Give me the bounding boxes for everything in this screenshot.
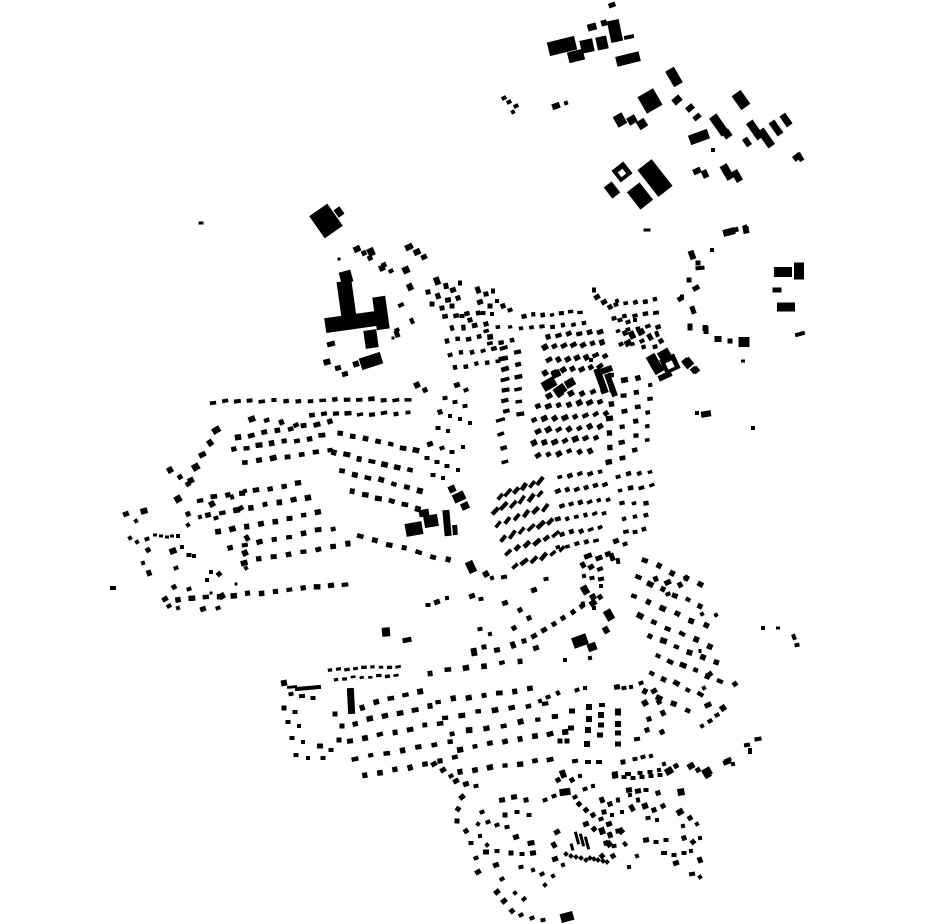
building bbox=[198, 451, 207, 459]
building bbox=[381, 713, 389, 720]
building bbox=[531, 417, 538, 423]
building bbox=[205, 578, 209, 582]
building bbox=[300, 423, 306, 429]
building bbox=[592, 288, 596, 293]
building bbox=[635, 788, 642, 794]
building bbox=[448, 773, 454, 779]
building bbox=[659, 709, 666, 717]
building bbox=[542, 797, 548, 802]
building bbox=[350, 675, 355, 678]
building bbox=[328, 668, 333, 672]
building bbox=[607, 831, 614, 838]
building bbox=[652, 296, 657, 301]
building bbox=[495, 849, 500, 853]
building bbox=[489, 575, 494, 580]
building bbox=[703, 622, 710, 629]
building bbox=[243, 565, 248, 570]
building bbox=[555, 426, 563, 433]
building bbox=[259, 590, 265, 596]
building bbox=[534, 403, 541, 410]
building bbox=[501, 398, 509, 404]
building bbox=[559, 503, 566, 509]
building bbox=[393, 464, 401, 471]
building bbox=[699, 611, 704, 616]
building bbox=[404, 484, 411, 490]
building bbox=[701, 410, 712, 418]
building bbox=[283, 399, 289, 404]
building bbox=[458, 793, 466, 801]
building bbox=[649, 774, 654, 778]
building bbox=[564, 355, 572, 363]
building bbox=[699, 654, 706, 661]
building bbox=[541, 503, 550, 513]
building bbox=[563, 100, 568, 105]
building bbox=[795, 331, 806, 337]
building bbox=[281, 438, 287, 444]
building bbox=[773, 288, 782, 293]
building bbox=[692, 113, 701, 122]
building bbox=[380, 411, 387, 416]
building bbox=[491, 346, 498, 352]
building bbox=[281, 680, 288, 687]
building bbox=[611, 316, 617, 321]
building bbox=[177, 474, 184, 481]
building bbox=[501, 575, 508, 580]
building bbox=[431, 742, 438, 748]
building bbox=[546, 757, 554, 763]
building bbox=[439, 445, 445, 450]
building bbox=[561, 437, 568, 444]
building bbox=[710, 248, 714, 252]
building bbox=[634, 574, 642, 581]
building bbox=[134, 539, 139, 544]
building bbox=[478, 834, 483, 839]
building bbox=[655, 324, 662, 330]
building bbox=[313, 421, 321, 428]
building bbox=[523, 797, 529, 803]
building bbox=[231, 446, 237, 452]
building bbox=[536, 490, 544, 498]
building bbox=[508, 529, 517, 539]
building bbox=[654, 840, 659, 844]
building bbox=[506, 99, 512, 105]
building bbox=[447, 739, 453, 744]
building bbox=[411, 707, 419, 713]
building bbox=[444, 667, 451, 672]
building bbox=[517, 761, 524, 767]
building bbox=[578, 366, 586, 373]
building bbox=[621, 686, 627, 691]
building bbox=[463, 387, 469, 392]
building bbox=[435, 292, 442, 299]
building bbox=[290, 496, 297, 502]
building bbox=[564, 516, 570, 522]
building bbox=[392, 398, 400, 403]
building bbox=[110, 586, 116, 590]
building bbox=[685, 596, 691, 602]
building bbox=[405, 521, 424, 537]
building bbox=[406, 283, 414, 292]
building bbox=[474, 868, 482, 875]
building bbox=[500, 303, 506, 309]
building bbox=[481, 692, 487, 698]
building bbox=[427, 671, 433, 677]
building bbox=[375, 438, 382, 444]
building bbox=[244, 524, 250, 530]
building bbox=[742, 137, 752, 148]
building bbox=[549, 550, 556, 557]
building bbox=[622, 541, 628, 546]
building bbox=[499, 797, 506, 803]
building bbox=[357, 412, 364, 417]
building bbox=[618, 341, 624, 347]
building bbox=[607, 430, 613, 436]
building bbox=[639, 338, 645, 344]
building bbox=[479, 809, 485, 814]
building bbox=[180, 545, 184, 549]
building bbox=[188, 595, 195, 601]
building bbox=[600, 858, 606, 864]
building bbox=[551, 793, 557, 798]
building bbox=[175, 605, 180, 610]
building bbox=[462, 665, 469, 672]
building bbox=[392, 337, 395, 340]
building bbox=[672, 860, 679, 867]
building bbox=[511, 794, 518, 800]
building bbox=[545, 694, 551, 699]
building bbox=[638, 771, 643, 775]
building bbox=[642, 311, 648, 316]
building bbox=[483, 328, 489, 333]
building bbox=[465, 336, 471, 341]
building bbox=[588, 656, 593, 661]
building bbox=[579, 561, 586, 569]
building bbox=[173, 494, 183, 504]
building bbox=[748, 748, 752, 754]
building bbox=[422, 761, 428, 767]
building bbox=[582, 821, 589, 828]
building bbox=[436, 721, 443, 727]
building bbox=[402, 637, 412, 643]
building bbox=[473, 784, 479, 789]
building bbox=[664, 766, 674, 776]
building bbox=[615, 742, 621, 747]
building bbox=[514, 387, 522, 392]
building bbox=[518, 495, 526, 505]
building bbox=[591, 784, 596, 789]
building bbox=[436, 426, 441, 430]
building bbox=[612, 538, 619, 545]
building bbox=[582, 786, 588, 791]
building bbox=[697, 856, 704, 863]
building bbox=[620, 393, 626, 398]
building bbox=[338, 258, 341, 261]
building bbox=[521, 896, 527, 902]
building bbox=[577, 471, 584, 477]
building bbox=[383, 751, 390, 756]
building bbox=[696, 580, 704, 588]
building bbox=[319, 399, 326, 403]
building bbox=[351, 756, 359, 762]
building bbox=[427, 703, 433, 709]
building bbox=[202, 594, 209, 599]
building bbox=[388, 268, 394, 274]
building bbox=[661, 851, 667, 855]
building bbox=[648, 753, 653, 758]
building bbox=[337, 430, 343, 436]
building bbox=[535, 717, 541, 722]
building bbox=[742, 226, 749, 234]
building bbox=[402, 692, 409, 698]
building bbox=[607, 801, 613, 807]
building bbox=[585, 727, 591, 733]
building bbox=[487, 341, 493, 346]
building bbox=[401, 502, 408, 508]
building bbox=[530, 587, 537, 594]
building bbox=[559, 366, 567, 374]
building bbox=[531, 312, 536, 317]
building bbox=[645, 323, 652, 328]
building bbox=[540, 626, 548, 633]
building bbox=[287, 426, 294, 432]
building bbox=[477, 627, 483, 632]
building bbox=[559, 311, 565, 316]
building bbox=[629, 685, 634, 690]
building bbox=[356, 398, 363, 402]
building bbox=[415, 744, 422, 750]
building bbox=[233, 507, 241, 514]
building bbox=[284, 454, 290, 459]
building bbox=[652, 575, 659, 582]
building bbox=[359, 676, 364, 679]
building bbox=[521, 638, 527, 644]
building bbox=[439, 305, 445, 311]
building bbox=[570, 609, 577, 616]
building bbox=[449, 287, 456, 294]
building bbox=[593, 435, 600, 441]
building bbox=[572, 794, 578, 800]
building bbox=[430, 760, 438, 767]
building bbox=[577, 311, 583, 315]
building bbox=[456, 468, 460, 472]
building bbox=[453, 313, 460, 319]
building bbox=[344, 411, 351, 416]
building bbox=[406, 726, 413, 732]
building bbox=[619, 501, 625, 506]
building bbox=[159, 535, 163, 538]
building bbox=[294, 438, 301, 443]
building bbox=[519, 557, 529, 566]
building bbox=[462, 404, 468, 409]
building bbox=[470, 648, 477, 657]
building bbox=[445, 556, 451, 563]
building bbox=[769, 119, 784, 136]
building bbox=[570, 843, 575, 851]
building bbox=[452, 400, 458, 405]
building bbox=[655, 653, 661, 659]
building bbox=[608, 1, 616, 8]
building bbox=[455, 806, 462, 813]
building bbox=[586, 704, 592, 710]
building bbox=[641, 802, 649, 810]
building bbox=[532, 733, 539, 739]
building bbox=[632, 514, 637, 519]
building bbox=[483, 850, 489, 855]
building bbox=[573, 354, 581, 362]
building bbox=[511, 562, 519, 570]
building bbox=[210, 401, 217, 405]
building bbox=[540, 918, 546, 923]
building bbox=[696, 603, 703, 610]
building bbox=[466, 727, 473, 733]
building bbox=[550, 873, 555, 878]
building bbox=[501, 95, 507, 101]
building bbox=[578, 774, 583, 779]
building bbox=[754, 736, 762, 741]
building bbox=[165, 536, 169, 539]
building bbox=[701, 685, 707, 691]
building bbox=[596, 329, 604, 336]
building bbox=[575, 399, 583, 407]
building bbox=[352, 360, 360, 368]
building bbox=[649, 483, 655, 488]
building bbox=[601, 511, 606, 516]
building bbox=[610, 853, 617, 860]
building bbox=[363, 329, 378, 349]
building bbox=[644, 727, 650, 733]
building bbox=[587, 22, 598, 31]
building bbox=[685, 103, 695, 113]
building bbox=[361, 665, 367, 669]
building bbox=[208, 500, 216, 508]
building bbox=[596, 498, 601, 503]
building bbox=[257, 521, 264, 528]
building bbox=[722, 227, 735, 237]
building bbox=[503, 516, 511, 525]
building bbox=[692, 667, 698, 673]
building bbox=[290, 736, 295, 740]
building bbox=[598, 577, 605, 582]
building bbox=[494, 647, 501, 653]
building bbox=[485, 819, 491, 824]
building bbox=[495, 299, 499, 303]
building bbox=[628, 330, 637, 340]
building bbox=[640, 775, 645, 779]
building bbox=[592, 511, 598, 516]
building bbox=[491, 506, 500, 516]
building bbox=[492, 862, 499, 869]
building bbox=[353, 245, 362, 253]
building bbox=[286, 587, 292, 592]
building bbox=[615, 721, 621, 727]
building bbox=[526, 523, 535, 532]
building bbox=[140, 560, 145, 565]
building bbox=[571, 633, 589, 648]
building bbox=[569, 709, 575, 714]
building bbox=[576, 425, 583, 432]
building bbox=[794, 263, 804, 280]
building bbox=[677, 788, 685, 796]
building bbox=[460, 314, 465, 318]
building bbox=[267, 486, 273, 492]
building bbox=[658, 338, 665, 345]
building bbox=[503, 813, 508, 818]
building bbox=[314, 584, 321, 589]
building bbox=[528, 480, 536, 489]
building bbox=[219, 510, 226, 516]
building bbox=[387, 666, 392, 670]
building bbox=[659, 729, 666, 736]
building bbox=[493, 888, 501, 896]
building bbox=[607, 19, 623, 43]
building bbox=[685, 687, 691, 693]
building bbox=[744, 743, 751, 748]
building bbox=[153, 534, 157, 537]
building bbox=[686, 649, 693, 656]
building bbox=[422, 387, 429, 394]
building bbox=[555, 690, 561, 696]
building bbox=[599, 796, 606, 803]
building bbox=[515, 362, 522, 368]
building bbox=[650, 687, 658, 694]
building bbox=[463, 828, 470, 835]
building bbox=[517, 736, 523, 742]
building bbox=[461, 445, 465, 449]
building bbox=[350, 434, 356, 440]
building bbox=[359, 704, 366, 711]
building bbox=[621, 377, 629, 384]
building bbox=[166, 603, 172, 609]
building bbox=[318, 432, 325, 437]
building bbox=[660, 803, 667, 810]
building bbox=[551, 414, 559, 422]
building bbox=[415, 549, 423, 555]
building bbox=[651, 807, 657, 813]
building bbox=[597, 594, 604, 601]
building bbox=[574, 687, 580, 692]
building bbox=[579, 833, 585, 846]
building bbox=[665, 591, 671, 596]
building bbox=[535, 476, 545, 487]
building bbox=[256, 556, 262, 562]
building bbox=[185, 511, 192, 518]
building bbox=[585, 760, 591, 764]
building bbox=[655, 562, 662, 569]
building bbox=[498, 340, 504, 345]
building bbox=[589, 388, 596, 395]
building bbox=[584, 741, 590, 747]
building-footprint-canvas bbox=[0, 0, 930, 924]
building bbox=[330, 526, 336, 532]
building bbox=[413, 248, 422, 256]
building bbox=[617, 488, 622, 493]
building bbox=[499, 534, 507, 543]
building bbox=[211, 425, 221, 435]
building bbox=[349, 488, 355, 494]
building bbox=[571, 322, 577, 327]
building bbox=[145, 547, 152, 554]
building bbox=[659, 586, 666, 593]
building bbox=[583, 539, 589, 545]
building bbox=[396, 710, 404, 716]
building bbox=[689, 838, 696, 845]
building bbox=[239, 490, 245, 496]
building bbox=[509, 641, 516, 649]
building bbox=[460, 501, 470, 511]
building bbox=[301, 513, 307, 518]
building bbox=[442, 510, 451, 537]
building bbox=[622, 775, 627, 779]
